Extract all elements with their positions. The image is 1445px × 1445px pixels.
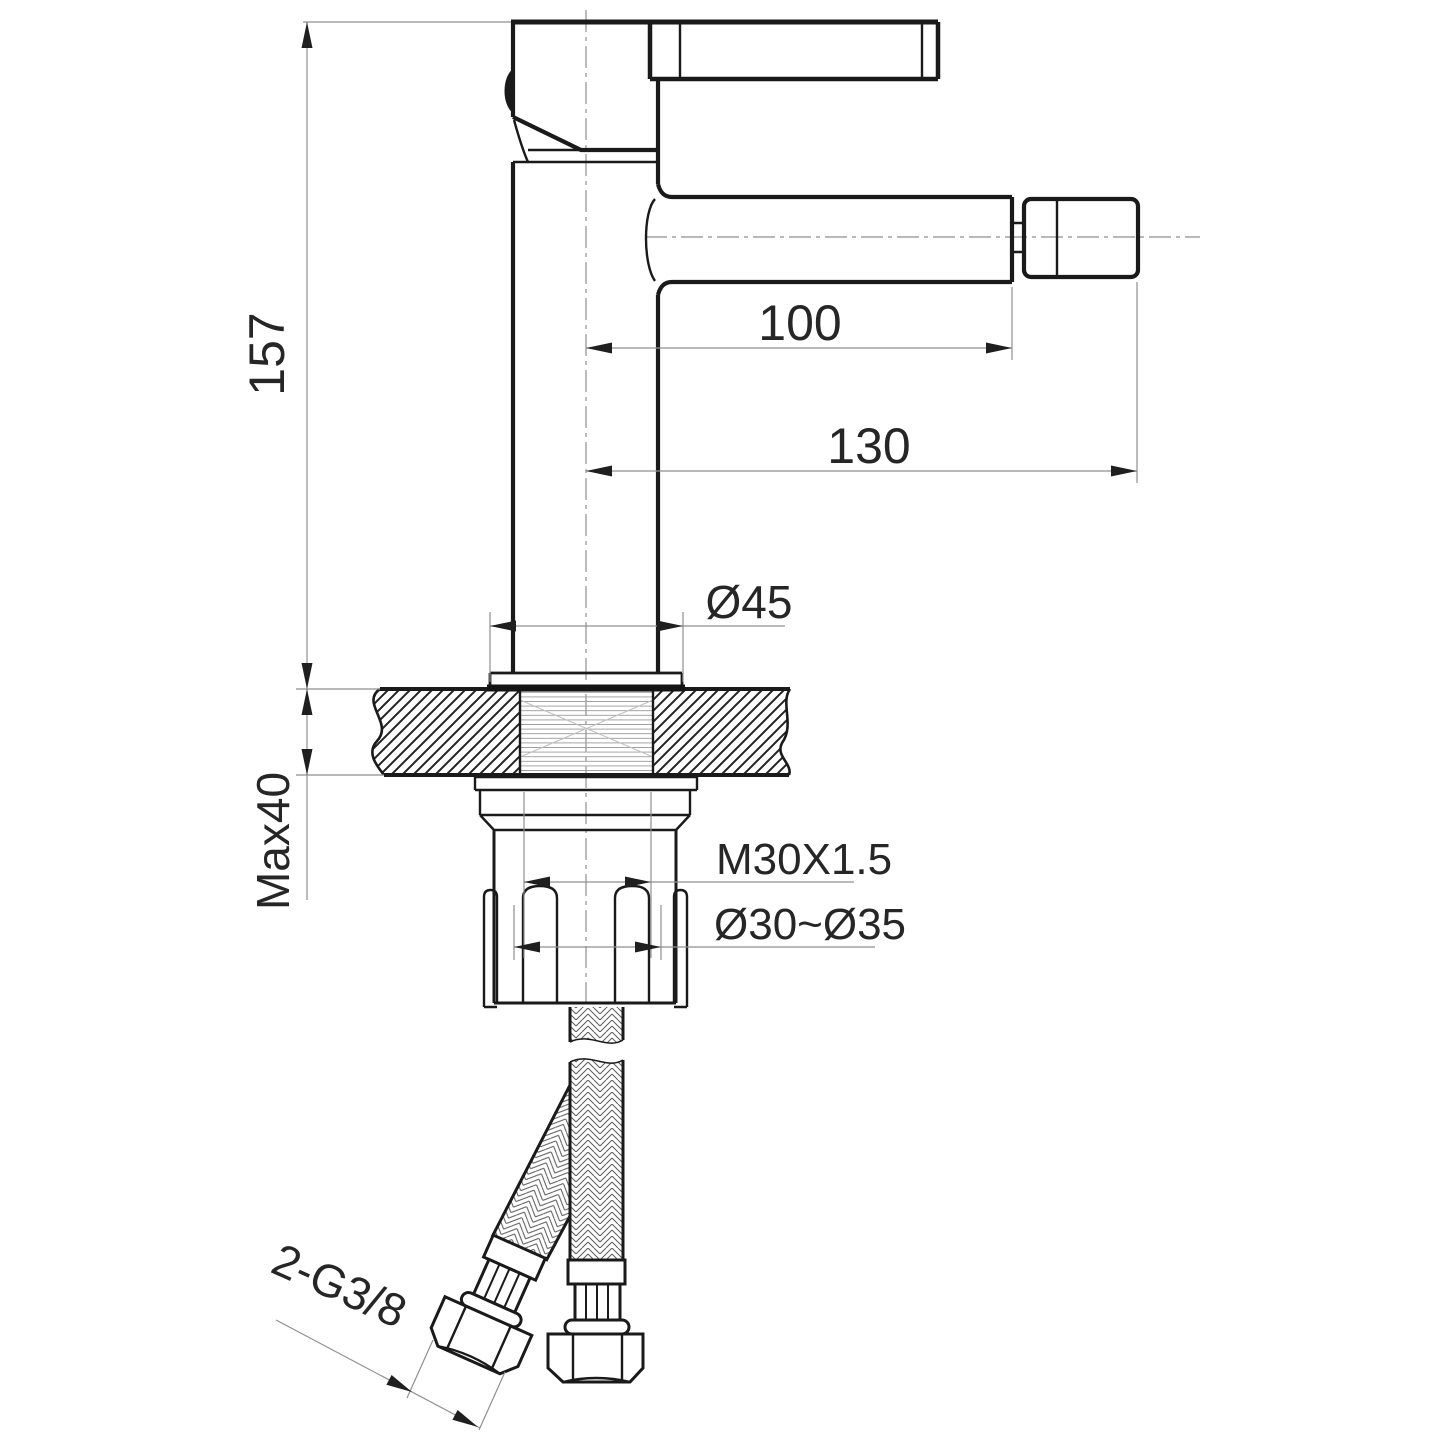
spout-bottom-line xyxy=(658,282,1012,295)
faucet-outline xyxy=(487,22,1138,688)
countertop-section xyxy=(372,689,790,775)
dim-overall-reach-label: 130 xyxy=(827,418,910,474)
handle-lever xyxy=(650,22,938,79)
supply-hoses xyxy=(425,1007,643,1382)
arrow-right-icon xyxy=(986,343,1012,354)
arrow-left-icon xyxy=(586,466,612,477)
dim-spout-reach-100: 100 xyxy=(586,287,1012,360)
handle-side-lens xyxy=(506,70,514,112)
dim-deck-thickness-label: Max40 xyxy=(247,772,299,910)
fitting-ring xyxy=(565,1320,629,1334)
arrow-leader-icon xyxy=(452,1410,478,1427)
dim-spout-reach-label: 100 xyxy=(758,295,841,351)
faucet-technical-drawing: 157 Max40 100 130 Ø45 xyxy=(0,0,1445,1445)
dim-height-label: 157 xyxy=(239,312,295,395)
hose-stub-braid xyxy=(570,1007,623,1043)
dim-overall-reach-130: 130 xyxy=(586,282,1137,483)
dim-hose-thread-label: 2-G3/8 xyxy=(265,1233,415,1338)
dim-height-157: 157 xyxy=(239,22,511,689)
dim-hole-diameter: Ø30~Ø35 xyxy=(514,900,906,960)
arrow-down-icon xyxy=(302,663,313,689)
flange-taper xyxy=(480,815,690,830)
centerlines xyxy=(586,10,1200,1012)
dim-base-diameter-label: Ø45 xyxy=(706,576,793,628)
aerator xyxy=(1024,199,1138,277)
arrow-right-icon xyxy=(1111,466,1137,477)
fitting-hex-nut xyxy=(548,1334,643,1382)
arrow-left-icon xyxy=(586,343,612,354)
arrow-leader-icon xyxy=(386,1375,412,1392)
arrow-left-icon xyxy=(514,942,540,953)
countertop-hatch-left xyxy=(372,689,520,775)
arrow-up-icon xyxy=(302,689,313,715)
hose-angled-braid xyxy=(492,1085,570,1261)
handle-base-arc xyxy=(514,120,528,162)
threaded-shank xyxy=(520,689,653,775)
dim-deck-thickness: Max40 xyxy=(247,689,384,910)
hose-vertical-braid xyxy=(570,1059,623,1260)
arrow-down-icon xyxy=(302,749,313,775)
flange xyxy=(480,790,690,830)
arrow-right-icon xyxy=(657,621,683,632)
countertop-hatch-right xyxy=(653,689,790,775)
spout-top-line xyxy=(658,184,1012,197)
hose-fitting-right xyxy=(548,1260,643,1382)
fitting-collar xyxy=(568,1260,625,1284)
dim-shank-thread-label: M30X1.5 xyxy=(716,835,892,884)
drawing-canvas: 157 Max40 100 130 Ø45 xyxy=(0,0,1445,1445)
handle-lever-inner-lines xyxy=(680,22,922,79)
spout-root-arc xyxy=(646,199,655,281)
arrow-left-icon xyxy=(490,621,516,632)
handle-assembly xyxy=(506,22,939,184)
spout xyxy=(646,184,1138,295)
dim-base-diameter-45: Ø45 xyxy=(490,576,792,682)
arrow-up-icon xyxy=(302,22,313,48)
dim-hole-diameter-label: Ø30~Ø35 xyxy=(714,900,906,949)
